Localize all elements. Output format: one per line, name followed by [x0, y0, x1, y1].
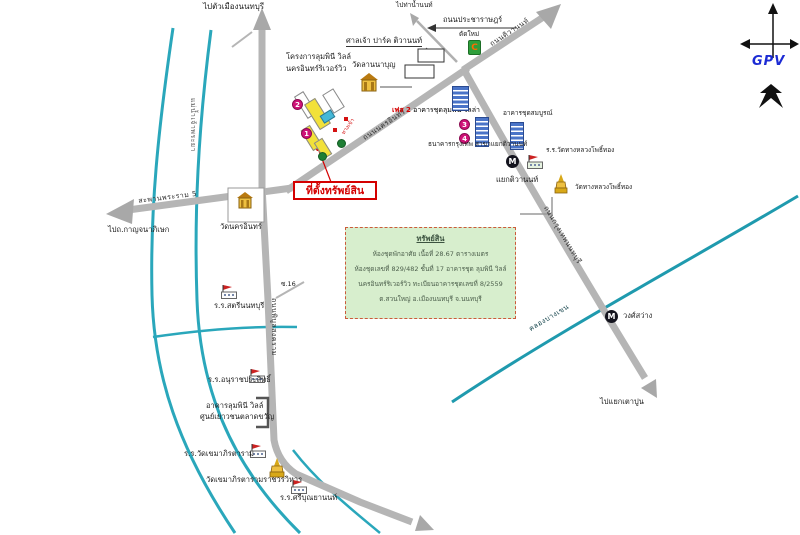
- building-marker-3: 3: [459, 119, 470, 130]
- market-label-line2: ศูนย์เยาวชนตลาดขวัญ: [200, 413, 274, 421]
- pracharat-arrowhead: [427, 24, 436, 32]
- school-satri-label: ร.ร.สตรีนนทบุรี: [214, 302, 264, 310]
- condo-tower-icon: [452, 86, 469, 111]
- school-icon: [527, 154, 543, 173]
- property-location-map: ไปตัวเมืองนนทบุรี ไปท่าน้ำนนท์ ไปถ.กาญจน…: [0, 0, 800, 535]
- school-anurat-label: ร.ร.อนุราชประสิทธิ์: [208, 376, 271, 384]
- mrt-yaek-tiwanon-label: แยกติวานนท์: [496, 176, 538, 184]
- shrine-building-1: [418, 49, 444, 62]
- info-box-line: นครอินทร์ริเวอร์วิว ทะเบียนอาคารชุดเลขที…: [346, 277, 515, 292]
- building-marker-2: 2: [292, 99, 303, 110]
- wat-nakhon-in-label: วัดนครอินทร์: [220, 223, 262, 231]
- school-wat-khema-label: ร.ร.วัดเขมาภิรตาราม: [184, 450, 254, 458]
- soi-16-label: ซ.16: [281, 281, 296, 288]
- temple-icon: [237, 192, 253, 214]
- bank-label: ธนาคารกรุงเทพ สาขาแยกติวานนท์: [428, 141, 527, 148]
- wat-thang-luang-label: วัดทางหลวงโพธิ์ทอง: [575, 184, 632, 191]
- compass-west-arrowhead: [740, 39, 750, 49]
- shrine-label: ศาลเจ้า ปาร์ค ติวานนท์: [346, 37, 422, 47]
- mrt-station-icon: M: [506, 155, 519, 168]
- compass-bird-icon: [759, 84, 783, 108]
- road-pracharat-label: ถนนประชาราษฎร์: [443, 16, 502, 24]
- property-info-box: ทรัพย์สิน ห้องชุดพักอาศัย เนื้อที่ 28.67…: [345, 227, 516, 319]
- condo-somboon-label: อาคารชุดสมบูรณ์: [503, 110, 553, 117]
- project-name-line2: นครอินทร์ริเวอร์วิว: [286, 65, 347, 73]
- wat-khema-label: วัดเขมาภิรตารามราชวรวิหาร: [206, 476, 302, 484]
- school-thang-luang-label: ร.ร.วัดทางหลวงโพธิ์ทอง: [546, 147, 614, 154]
- river-label: แม่น้ำเจ้าพระยา: [188, 98, 196, 152]
- road-phibun-label: ถนนพิบูลสงคราม: [269, 298, 277, 356]
- arrow-south-east: [415, 515, 434, 531]
- arrow-tao-pun: [641, 379, 657, 398]
- tree-icon: [318, 152, 327, 161]
- dest-tao-pun-label: ไปแยกเตาปูน: [600, 398, 644, 406]
- wat-lanna-bun-label: วัดลานนาบุญ: [352, 61, 396, 69]
- dest-tha-nam-non-label: ไปท่าน้ำนนท์: [396, 2, 433, 9]
- mrt-station-icon: M: [605, 310, 618, 323]
- info-box-line: ต.สวนใหญ่ อ.เมืองนนทบุรี จ.นนทบุรี: [346, 292, 515, 307]
- building-marker-1: 1: [301, 128, 312, 139]
- gate-marker: [333, 128, 337, 132]
- arrow-pracharat: [410, 13, 419, 26]
- info-box-title: ทรัพย์สิน: [346, 233, 515, 245]
- market-label-line1: อาคารลุมพินี วิลล์: [206, 402, 263, 410]
- dest-north-label: ไปตัวเมืองนนทบุรี: [203, 3, 264, 12]
- arrow-west: [106, 199, 134, 224]
- mrt-wong-sawang-label: วงศ์สว่าง: [623, 312, 652, 320]
- school-sriboonyanon-label: ร.ร.ศรีบุณยานนท์: [280, 494, 337, 502]
- phase-label-rest: อาคารชุดลุมพินี วิลล่า: [413, 106, 480, 114]
- store-c-icon: C: [468, 40, 481, 55]
- temple-gate-icon: [360, 73, 378, 97]
- compass-east-arrowhead: [790, 39, 799, 49]
- compass-brand-label: GPV: [752, 54, 785, 69]
- info-box-line: ห้องชุดเลขที่ 829/482 ชั้นที่ 17 อาคารชุ…: [346, 262, 515, 277]
- info-box-line: ห้องชุดพักอาศัย เนื้อที่ 28.67 ตารางเมตร: [346, 247, 515, 262]
- road-stub-top: [232, 32, 252, 47]
- compass-north-arrowhead: [768, 3, 778, 14]
- chedi-icon: [554, 174, 568, 198]
- project-name-line1: โครงการลุมพินี วิลล์: [286, 53, 351, 61]
- phase-label-red: เฟส 2: [392, 106, 411, 114]
- dest-kanchanaphisek-label: ไปถ.กาญจนาภิเษก: [108, 226, 169, 234]
- property-location-box: ที่ตั้งทรัพย์สิน: [293, 181, 377, 200]
- road-pracharat-sub-label: ตัดใหม่: [459, 31, 479, 38]
- tree-icon: [337, 139, 346, 148]
- shrine-building-2: [405, 65, 434, 78]
